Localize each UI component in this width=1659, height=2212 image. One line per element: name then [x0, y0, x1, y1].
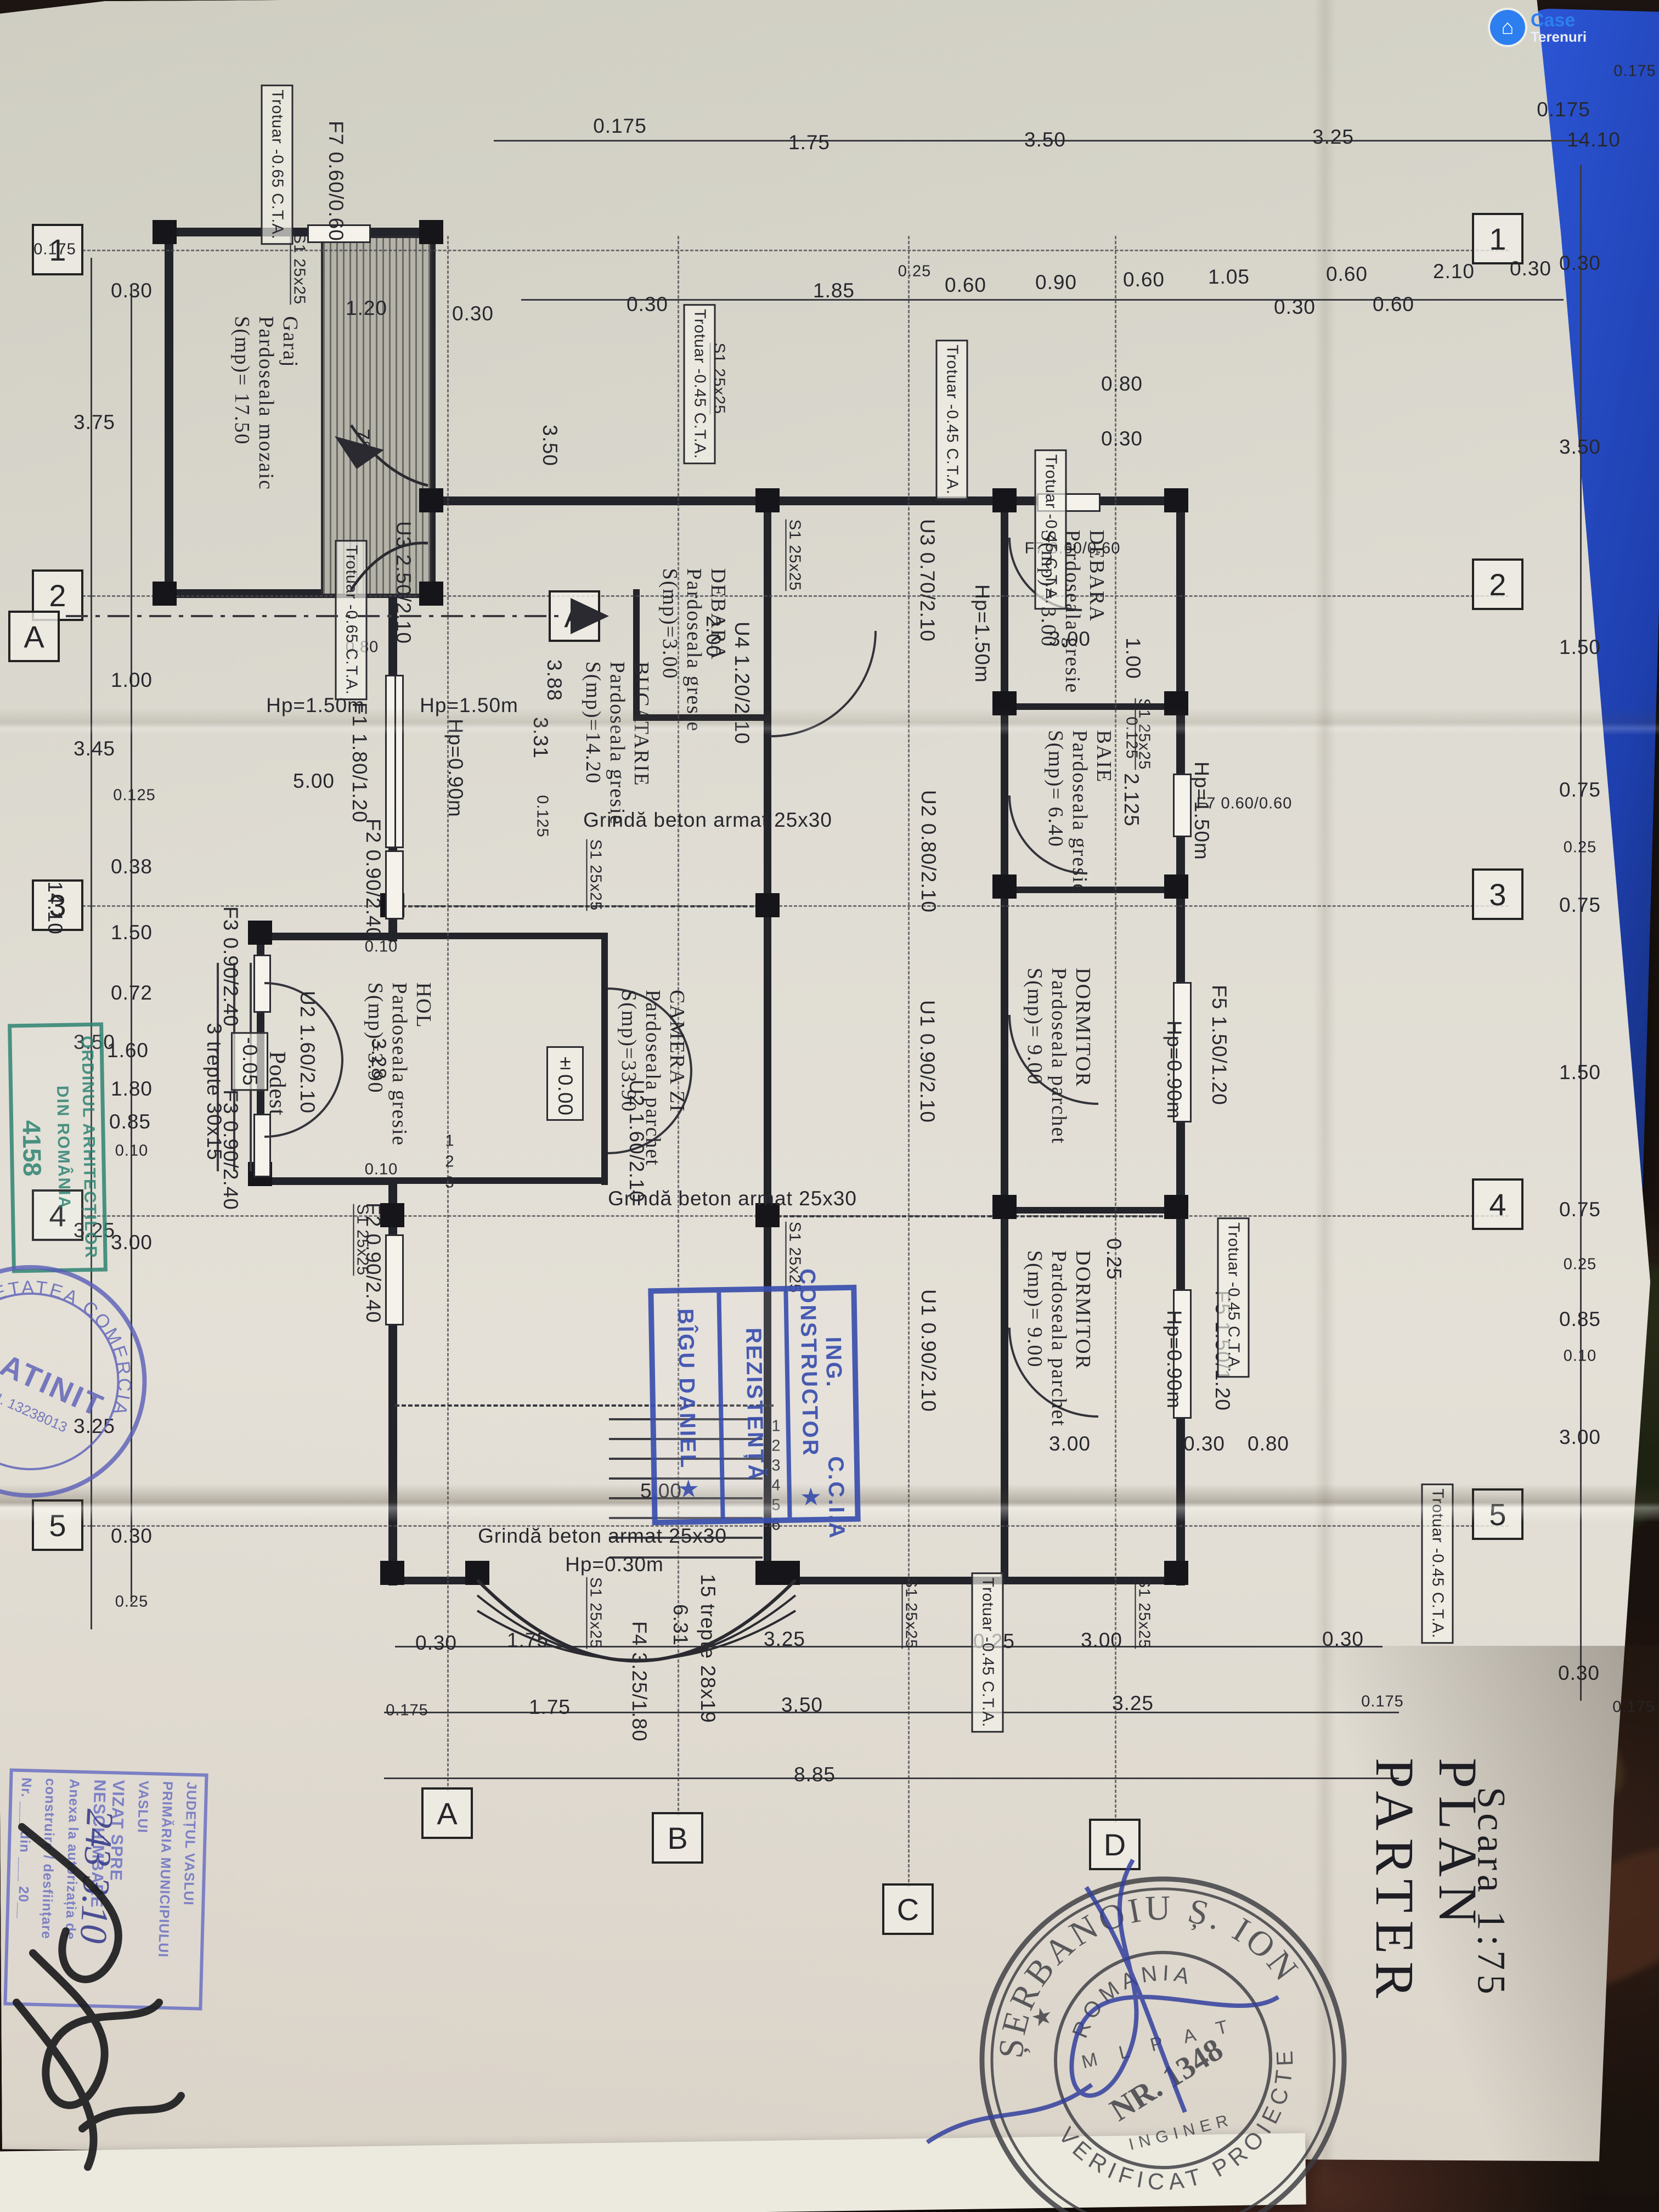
- dim-text-v: 7°: [351, 428, 374, 449]
- dim-text-v: U3 2.50/2.10: [392, 521, 415, 644]
- entry-tread-number: 1: [445, 1132, 454, 1150]
- room-a: S(mp)= 6.40: [1043, 730, 1068, 894]
- window-F7: [1173, 774, 1192, 837]
- dim-text: 0.60: [1373, 293, 1414, 316]
- dim-text: 0.30: [1510, 257, 1551, 280]
- dim-text: 0.25: [898, 263, 931, 281]
- room-n: HOL: [411, 983, 436, 1147]
- dim-text: 0.30: [111, 279, 153, 302]
- dim-text: 1.50: [111, 921, 153, 944]
- dim-text: 0.30: [627, 293, 668, 316]
- grid-bubble-B: B: [652, 1812, 703, 1864]
- dim-text: 5.00: [293, 770, 335, 793]
- camera-icon: ⌂: [1490, 10, 1525, 45]
- room-label-dormitor: DORMITORPardoseala parchetS(mp)= 9.00: [1023, 1250, 1095, 1427]
- podest-label: Podest: [264, 1051, 290, 1116]
- room-f: Pardoseala gresie: [605, 662, 629, 826]
- trotuar-label: Trotuar -0.65 C.T.A.: [335, 540, 368, 700]
- trotuar-label: Trotuar -0.45 C.T.A.: [972, 1572, 1004, 1733]
- column-S1: [248, 921, 272, 945]
- ordin-line1: ORDINUL ARHITECȚILOR: [77, 1035, 100, 1259]
- dim-text-v: U3 0.70/2.10: [916, 519, 939, 642]
- vizat-construire: construire / desființare: [36, 1778, 58, 1998]
- window-F2: [385, 1234, 404, 1325]
- dim-text: 3.00: [1049, 1432, 1091, 1455]
- dim-text: 0.10: [365, 1161, 398, 1179]
- grid-axis-h: [82, 1215, 1509, 1217]
- dim-text: 0.175: [386, 1702, 428, 1720]
- room-a: S(mp)= 17.50: [230, 316, 254, 490]
- room-f: Pardoseala parchet: [1047, 968, 1071, 1144]
- room-label-baie: BAIEPardoseala gresieS(mp)= 6.40: [1043, 730, 1116, 894]
- dim-text-v: Hp=0.90m: [1163, 1310, 1186, 1409]
- room-n: DORMITOR: [1071, 968, 1095, 1144]
- level-podest: -0.05: [231, 1032, 268, 1091]
- watermark-subtitle: Terenuri: [1531, 30, 1587, 44]
- dim-text: 0.10: [365, 938, 398, 956]
- room-label-debara: DEBARAPardoseala gresieS(mp)= 3.00: [1036, 530, 1109, 694]
- column-S1: [1164, 874, 1188, 899]
- dim-text: 0.175: [33, 241, 76, 259]
- dim-text-v: 3 trepte 30x15: [202, 1023, 225, 1161]
- dim-text: 0.125: [113, 787, 156, 805]
- dim-text: 0.10: [1564, 1347, 1596, 1365]
- dim-text: 0.75: [1559, 1198, 1601, 1221]
- dim-text: 0.30: [1274, 296, 1316, 319]
- column-S1: [776, 1561, 800, 1585]
- dim-text: 14.10: [1567, 128, 1621, 151]
- trotuar-label: Trotuar -0.45 C.T.A.: [684, 304, 716, 464]
- dim-text: 1.80: [111, 1077, 153, 1101]
- blueprint-photo: 1122334455ABCDAA0.1751.753.503.250.1750.…: [0, 0, 1659, 2212]
- dim-text-v: F5 1.50/1.20: [1207, 985, 1231, 1105]
- trotuar-label: Trotuar -0.45 C.T.A.: [1217, 1217, 1250, 1378]
- column-S1: [992, 1195, 1017, 1219]
- dim-text: 3.50: [1559, 436, 1601, 459]
- dim-text: 1.60: [107, 1039, 149, 1062]
- dim-text-v: 1.00: [1121, 637, 1144, 679]
- dim-text: 0.25: [1564, 839, 1596, 857]
- dim-text: 2.10: [1433, 260, 1475, 283]
- engineer-stamp: ING. CONSTRUCTOR C.C.I.A ★ REZISTENȚĂ BÎ…: [648, 1285, 860, 1526]
- column-S1: [992, 488, 1017, 512]
- dim-text: 0.30: [1559, 252, 1601, 275]
- dim-text-v: Hp=1.50m: [1190, 761, 1213, 860]
- dim-text-v: Hp=1.50m: [970, 584, 994, 683]
- section-marker: A: [8, 611, 60, 662]
- dim-text: 1.05: [1208, 266, 1250, 289]
- dim-text: 0.30: [452, 302, 494, 325]
- dim-text: 0.25: [115, 1593, 148, 1611]
- room-n: Garaj: [278, 316, 302, 490]
- dim-text: 0.90: [1035, 271, 1077, 294]
- dim-text-v: 3.50: [538, 425, 561, 466]
- column-label: S1 25x25: [586, 839, 605, 911]
- column-S1: [1164, 1195, 1188, 1219]
- room-label-camera zi: CAMERA ZIPardoseala parchetS(mp)=33.90: [617, 990, 689, 1166]
- column-S1: [153, 220, 177, 244]
- dim-text: 0.175: [593, 115, 647, 138]
- dim-text: 0.72: [111, 981, 153, 1005]
- room-n: DEBARA: [1085, 530, 1109, 694]
- room-a: S(mp)=3.90: [363, 983, 387, 1147]
- dim-line: [1580, 165, 1582, 1701]
- dim-text: 3.75: [74, 411, 115, 434]
- room-f: Pardoseala mozaic: [254, 316, 278, 490]
- entry-tread-number: 2: [445, 1153, 454, 1171]
- dim-text-v: 3.88: [543, 659, 566, 701]
- column-S1: [380, 1561, 404, 1585]
- dim-text: 0.38: [111, 855, 153, 878]
- dim-text-v: F2 0.90/2.40: [362, 819, 385, 939]
- watermark-title: Case: [1531, 11, 1587, 30]
- dim-text-v: U1 0.90/2.10: [917, 1289, 940, 1412]
- room-a: S(mp)= 9.00: [1023, 1250, 1047, 1427]
- dim-text-v: F7 0.60/0.60: [324, 121, 347, 241]
- window-F1: [385, 675, 404, 848]
- level-zero: ±0.00: [546, 1046, 584, 1121]
- dim-text-v: 14.10: [43, 881, 66, 935]
- plan-scale: Scara 1:75: [1469, 1787, 1514, 1999]
- grid-axis-h: [82, 595, 1509, 597]
- trotuar-label: Trotuar -0.45 C.T.A.: [936, 340, 968, 500]
- dim-text: 1.75: [788, 131, 830, 154]
- ordin-number: 4158: [16, 1120, 47, 1176]
- column-label: S1 25x25: [1135, 1577, 1153, 1649]
- dim-text-v: 2.125: [1120, 773, 1143, 827]
- section-marker: A: [549, 590, 600, 642]
- dim-text: 0.30: [415, 1632, 457, 1655]
- grid-axis-v: [447, 236, 449, 1791]
- dim-text: 0.30: [1183, 1432, 1225, 1455]
- column-label: S1 25x25: [902, 1577, 920, 1649]
- grid-bubble-D: D: [1089, 1819, 1141, 1870]
- dim-text: 1.20: [346, 297, 387, 320]
- dim-text: 3.25: [1112, 1692, 1154, 1715]
- dim-text-v: U1 0.90/2.10: [916, 1000, 939, 1123]
- dim-text: 3.25: [764, 1628, 805, 1651]
- grid-axis-v: [1115, 236, 1116, 1822]
- vizat-oras: VASLUI: [129, 1780, 151, 2000]
- dim-text: 0.75: [1559, 894, 1601, 917]
- dim-text: 1.50: [1559, 1061, 1601, 1084]
- vizat-primaria: PRIMĂRIA MUNICIPIULUI: [154, 1781, 175, 2001]
- column-label: S1 25x25: [586, 1577, 605, 1649]
- dim-text: 1.85: [813, 279, 855, 302]
- room-f: Pardoseala parchet: [1047, 1250, 1071, 1427]
- stamp-line-role: ING. CONSTRUCTOR C.C.I.A ★: [784, 1290, 855, 1517]
- room-a: S(mp)=14.20: [581, 662, 605, 826]
- window-F2: [385, 850, 404, 919]
- dim-text: 3.00: [1559, 1426, 1601, 1449]
- column-S1: [1164, 1561, 1188, 1585]
- dim-text: 8.85: [794, 1763, 836, 1786]
- column-S1: [419, 220, 443, 244]
- dim-text: 3.00: [1081, 1629, 1122, 1652]
- dim-text: 0.60: [1123, 268, 1165, 291]
- dim-text: 0.175: [1537, 98, 1590, 121]
- grid-bubble-4: 4: [1472, 1178, 1523, 1230]
- dim-text: 0.85: [1559, 1308, 1601, 1331]
- dim-text: 0.30: [1101, 427, 1143, 450]
- room-label-garaj: GarajPardoseala mozaicS(mp)= 17.50: [230, 316, 302, 490]
- dim-text: 0.60: [945, 274, 986, 297]
- case-terenuri-watermark: ⌂ Case Terenuri: [1490, 10, 1587, 45]
- entry-tread-number: 3: [445, 1174, 454, 1192]
- column-S1: [755, 893, 780, 917]
- dim-text: 0.10: [115, 1142, 148, 1160]
- grid-axis-h: [82, 905, 1509, 907]
- wall: [601, 933, 608, 1185]
- dim-text-v: U2 0.80/2.10: [917, 790, 940, 913]
- wall: [388, 1177, 608, 1184]
- dim-text: 0.30: [111, 1525, 153, 1548]
- stamp-line-name: BÎGU DANIEL ★: [653, 1293, 720, 1520]
- dim-text: 1.75: [529, 1696, 571, 1719]
- dim-text: Grindă beton armat 25x30: [478, 1525, 727, 1548]
- wall: [1001, 1207, 1176, 1214]
- dim-text: 0.80: [1101, 373, 1143, 396]
- wall: [388, 933, 608, 939]
- vizat-judet: JUDEȚUL VASLUI: [178, 1782, 199, 2002]
- dim-text: 1.75: [507, 1629, 549, 1652]
- grid-bubble-3: 3: [1472, 868, 1523, 920]
- column-label: S1 25x25: [353, 1204, 371, 1276]
- room-label-dormitor: DORMITORPardoseala parchetS(mp)= 9.00: [1023, 968, 1095, 1144]
- dim-text: 0.75: [1559, 778, 1601, 802]
- room-label-bucatarie: BUCATARIEPardoseala gresieS(mp)=14.20: [581, 662, 653, 826]
- grid-bubble-1: 1: [1472, 213, 1523, 264]
- wall: [1001, 496, 1008, 1577]
- vizat-nr: Nr. ___ din ___ 20__: [13, 1778, 34, 1997]
- dim-text: 1.50: [1559, 636, 1601, 659]
- room-n: DORMITOR: [1071, 1250, 1095, 1427]
- dim-text-v: U2 1.60/2.10: [296, 991, 319, 1114]
- room-f: Pardoseala parchet: [641, 990, 665, 1166]
- column-S1: [419, 488, 443, 512]
- column-S1: [419, 582, 443, 606]
- dim-text-v: 0.25: [1102, 1238, 1125, 1280]
- dim-text-v: F3 0.90/2.40: [219, 906, 242, 1027]
- ordin-line2: DIN ROMÂNIA: [53, 1086, 74, 1210]
- grid-axis-h: [82, 1525, 1509, 1527]
- room-a: S(mp)= 3.00: [1036, 530, 1060, 694]
- dim-text: 1.00: [111, 669, 153, 692]
- stamp-line-discipline: REZISTENȚĂ: [716, 1291, 788, 1519]
- grid-bubble-A: A: [421, 1787, 473, 1839]
- wall: [165, 228, 173, 598]
- dim-text-v: Hp=0.90m: [1163, 1020, 1186, 1119]
- trotuar-label: Trotuar -0.65 C.T.A.: [261, 84, 294, 245]
- dim-text: 3.45: [74, 737, 115, 760]
- room-f: Pardoseala gresie: [1060, 530, 1085, 694]
- dim-text: Hp=0.30m: [565, 1553, 664, 1576]
- dim-text-v: 15 trepte 28x19: [696, 1574, 719, 1723]
- architect-order-stamp: ORDINUL ARHITECȚILOR DIN ROMÂNIA 4158: [8, 1023, 108, 1273]
- dim-text-v: 6.31: [669, 1604, 692, 1646]
- dim-text: 0.25: [1564, 1256, 1596, 1274]
- room-f: Pardoseala gresie: [1068, 730, 1092, 894]
- paper-fold: [0, 708, 1659, 735]
- room-n: BAIE: [1092, 730, 1116, 894]
- handwritten-number: 243 3.10: [71, 1808, 122, 1945]
- room-n: BUCATARIE: [629, 662, 653, 826]
- dim-text: 3.25: [74, 1415, 115, 1438]
- room-f: Pardoseala gresie: [387, 983, 411, 1147]
- dim-line: [384, 1778, 1399, 1779]
- room-n: CAMERA ZI: [665, 990, 689, 1166]
- dim-text-v: 0.125: [533, 795, 551, 838]
- dim-text: 0.80: [1248, 1432, 1289, 1455]
- column-S1: [992, 874, 1017, 899]
- grid-bubble-2: 2: [1472, 558, 1523, 610]
- dim-text: 3.50: [781, 1694, 823, 1717]
- room-a: S(mp)= 9.00: [1023, 968, 1047, 1144]
- column-S1: [755, 488, 780, 512]
- column-S1: [1164, 488, 1188, 512]
- dim-text: 3.00: [111, 1231, 153, 1254]
- room-a: S(mp)=33.90: [617, 990, 641, 1166]
- column-S1: [153, 582, 177, 606]
- column-label: S1 25x25: [786, 520, 804, 591]
- dim-text-v: F4 3.25/1.80: [628, 1621, 651, 1742]
- dim-text: 0.85: [109, 1110, 151, 1133]
- dim-text: 3.50: [1024, 128, 1066, 151]
- grid-bubble-C: C: [882, 1883, 934, 1935]
- room-label-hol: HOLPardoseala gresieS(mp)=3.90: [363, 983, 436, 1147]
- column-S1: [465, 1561, 489, 1585]
- dim-text: 0.175: [1613, 63, 1656, 81]
